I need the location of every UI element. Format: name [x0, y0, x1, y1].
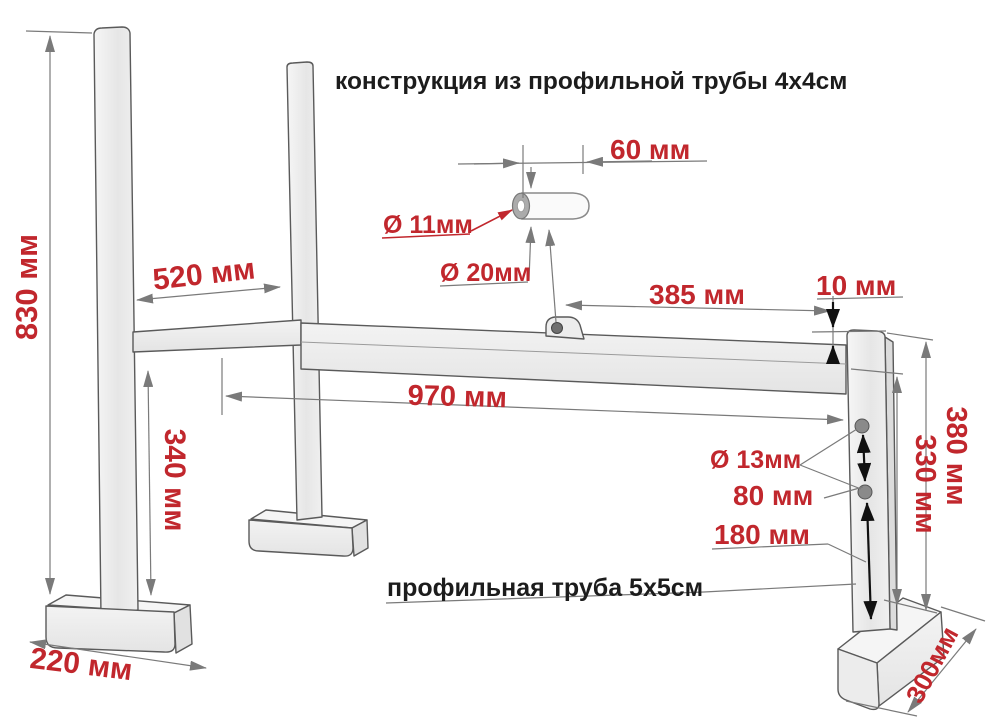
material-note: профильная труба 5х5см [387, 574, 703, 602]
dim-label-340: 340 мм [158, 429, 191, 532]
ext-300-high [941, 607, 985, 621]
front-post [847, 330, 890, 632]
ext-830-top [26, 31, 92, 33]
dim-label-10: 10 мм [816, 270, 896, 301]
dim-label-385: 385 мм [649, 279, 745, 310]
drawing-page: конструкция из профильной трубы 4х4см пр… [0, 0, 1000, 727]
pin-ring-hole [517, 200, 524, 212]
leader-d13-upper [800, 429, 857, 465]
back-beam-segment [133, 320, 301, 352]
dim-label-330: 330 мм [909, 434, 941, 533]
leader-lug-to-pin [549, 230, 556, 322]
middle-post [287, 62, 322, 520]
left-post [94, 27, 138, 616]
dim-label-60: 60 мм [610, 134, 690, 165]
construction-diagram: конструкция из профильной трубы 4х4см пр… [0, 0, 1000, 727]
dim-340 [148, 371, 151, 595]
page-title: конструкция из профильной трубы 4х4см [335, 68, 847, 95]
upper-hole [855, 419, 869, 433]
dim-label-d11: Ø 11мм [383, 211, 473, 239]
arrow-d11 [471, 210, 512, 231]
frame-structure [46, 27, 944, 709]
left-foot-end-face [174, 605, 192, 653]
lug-hole [552, 323, 563, 334]
lower-hole [858, 485, 872, 499]
dim-label-d20: Ø 20мм [440, 259, 531, 287]
dim-label-d13: Ø 13мм [710, 446, 801, 474]
pin-cylinder [522, 193, 589, 219]
dim-label-830: 830 мм [9, 234, 44, 340]
ext-380-top [887, 333, 933, 340]
dim-label-180: 180 мм [714, 519, 810, 550]
dim-label-80: 80 мм [733, 480, 813, 511]
dim-label-970: 970 мм [407, 380, 507, 415]
dim-label-380: 380 мм [940, 406, 972, 505]
